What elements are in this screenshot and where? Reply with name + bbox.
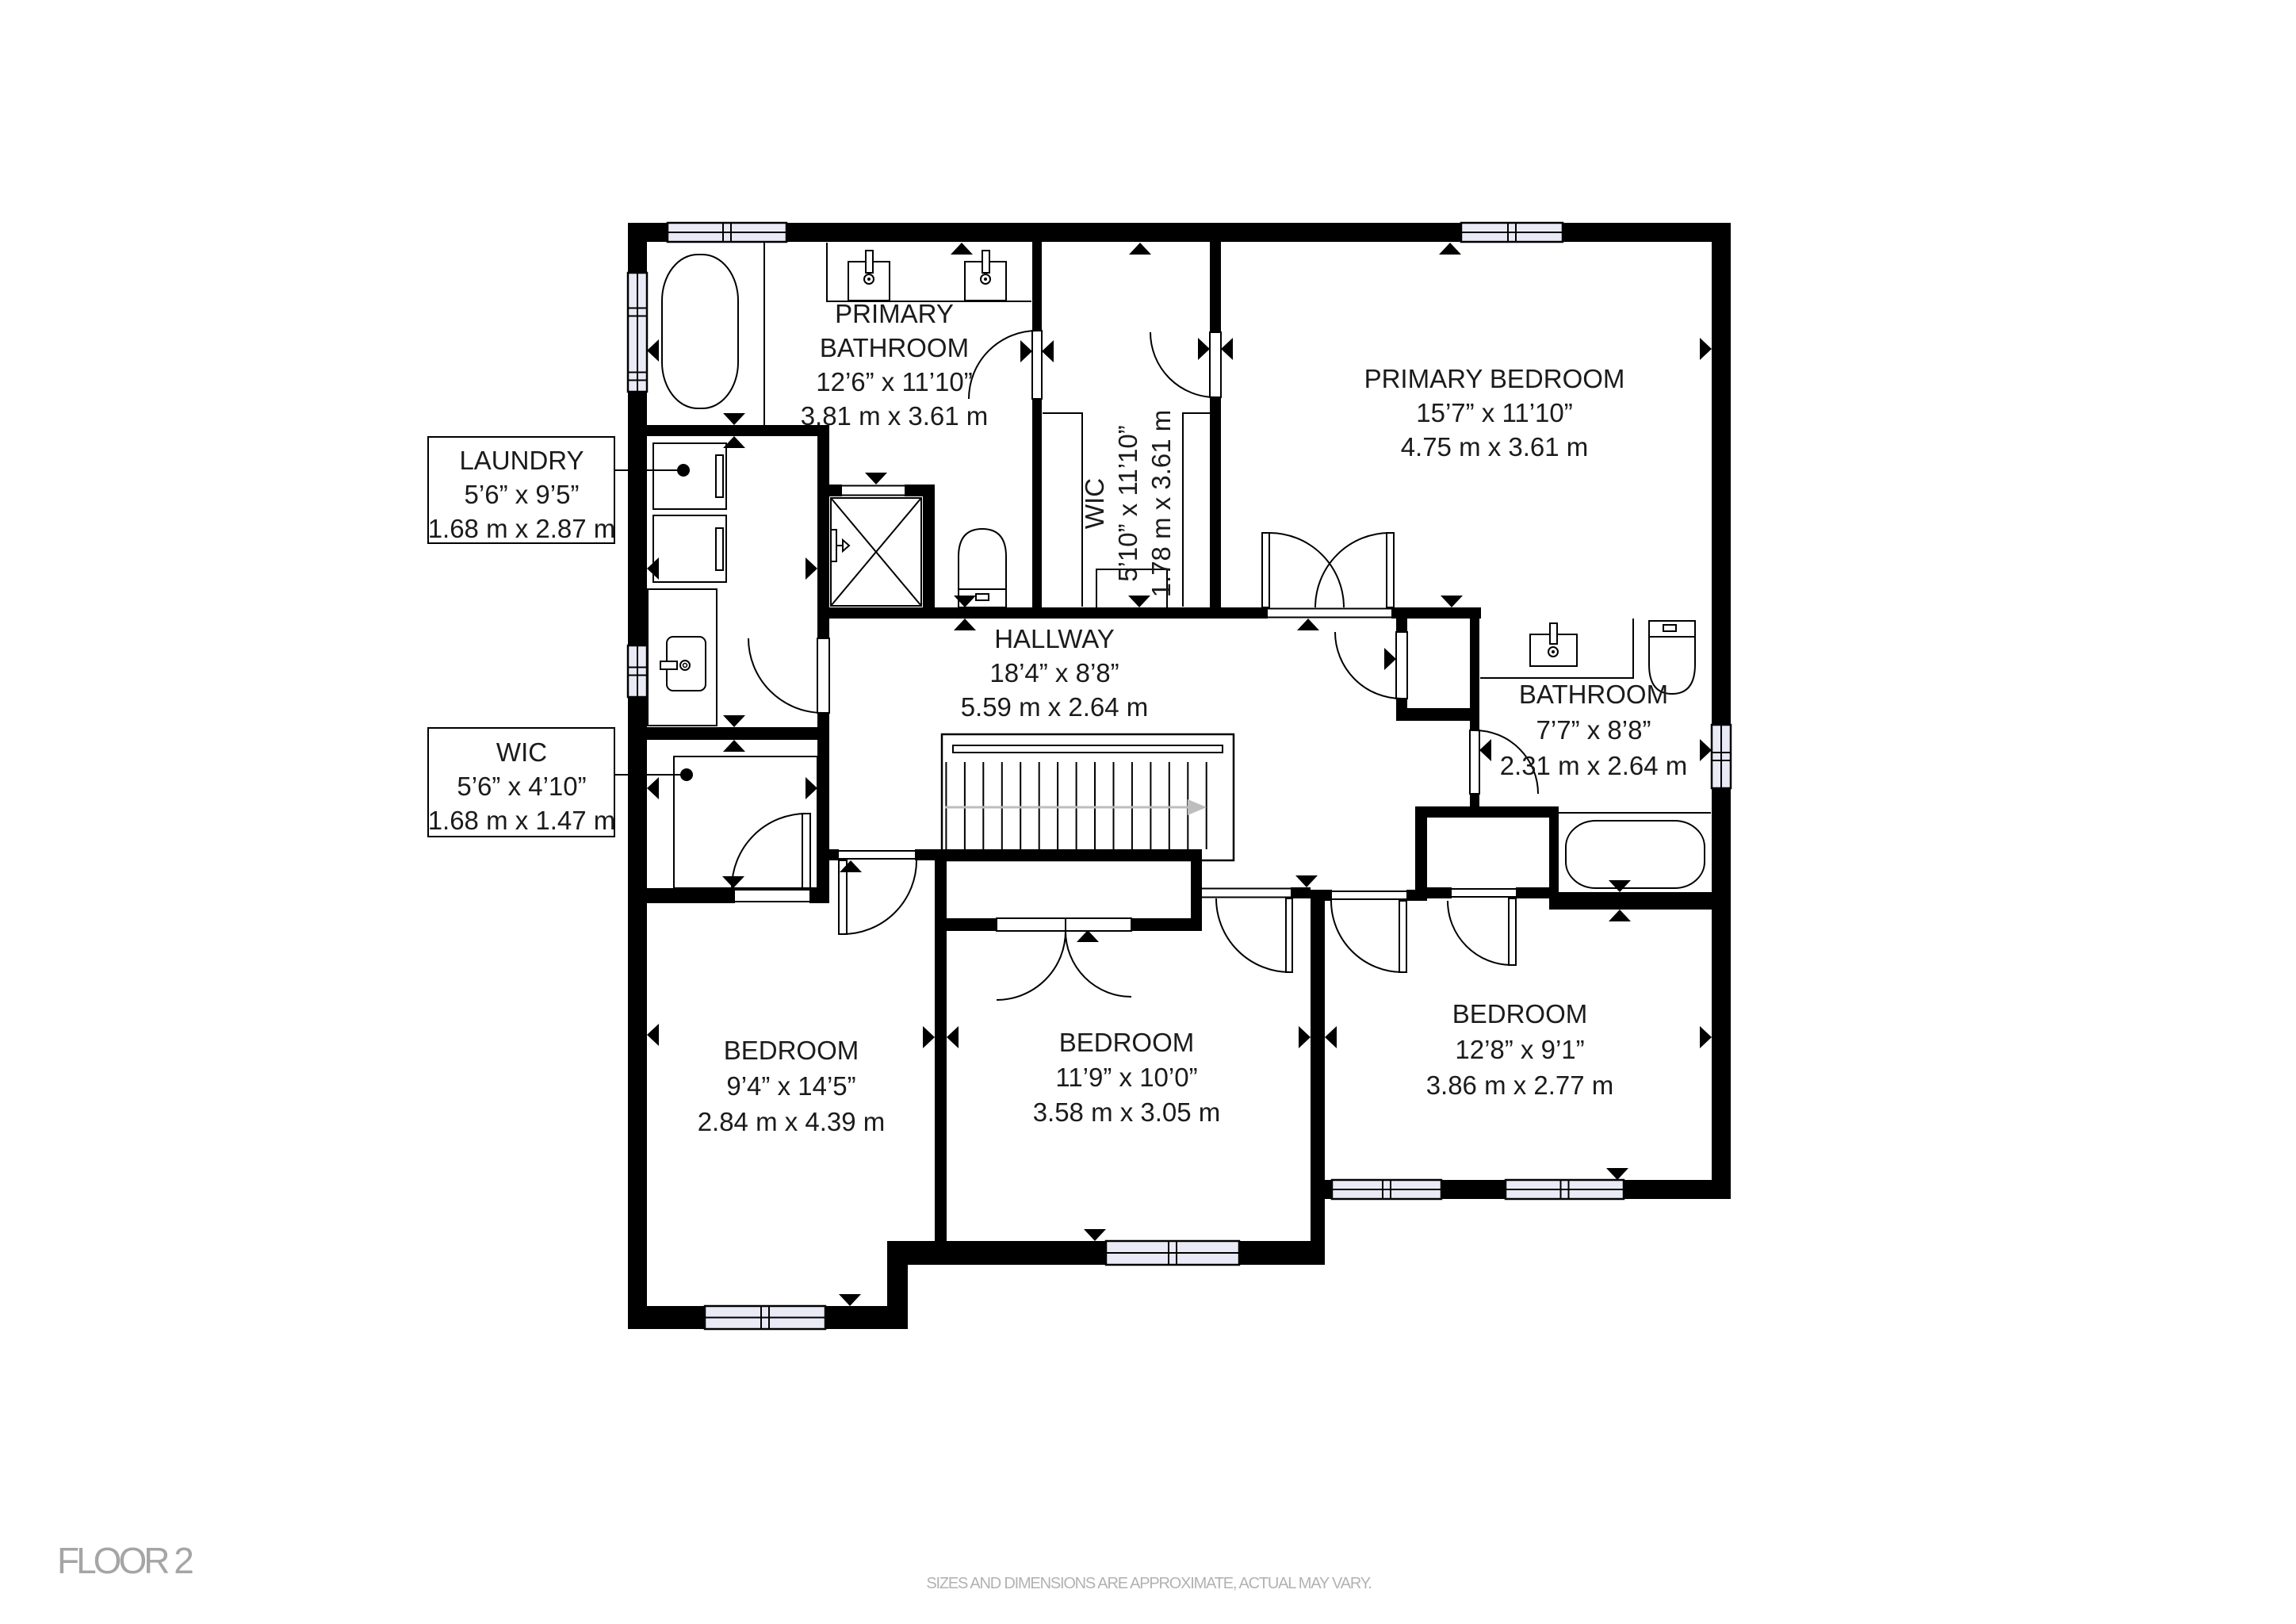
svg-text:WIC: WIC (1080, 478, 1109, 529)
svg-text:5’10” x 11’10”: 5’10” x 11’10” (1113, 425, 1142, 582)
svg-text:SIZES AND DIMENSIONS ARE APPRO: SIZES AND DIMENSIONS ARE APPROXIMATE, AC… (926, 1575, 1371, 1592)
svg-text:BEDROOM11’9” x 10’0”3.58 m x 3: BEDROOM11’9” x 10’0”3.58 m x 3.05 m (1033, 1028, 1221, 1127)
svg-text:FLOOR 2: FLOOR 2 (57, 1540, 193, 1581)
svg-text:1.78 m x 3.61 m: 1.78 m x 3.61 m (1146, 410, 1176, 598)
